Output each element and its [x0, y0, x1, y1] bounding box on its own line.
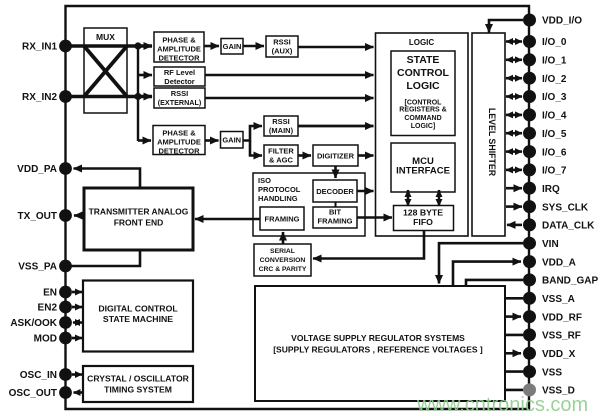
svg-text:VDD_PA: VDD_PA: [17, 164, 57, 175]
svg-text:VIN: VIN: [542, 239, 559, 250]
svg-text:RSSI: RSSI: [171, 89, 189, 98]
svg-text:FIFO: FIFO: [413, 217, 433, 227]
svg-text:LEVEL SHIFTER: LEVEL SHIFTER: [487, 108, 497, 177]
svg-text:FRONT END: FRONT END: [114, 217, 164, 227]
svg-text:TX_OUT: TX_OUT: [18, 211, 57, 222]
svg-text:RX_IN2: RX_IN2: [22, 92, 57, 103]
svg-text:GAIN: GAIN: [222, 136, 241, 145]
svg-text:VDD_I/O: VDD_I/O: [542, 16, 582, 27]
svg-text:DETECTOR: DETECTOR: [158, 54, 200, 63]
svg-text:SERIAL: SERIAL: [270, 248, 295, 255]
svg-text:RSSI: RSSI: [272, 117, 290, 126]
svg-text:INTERFACE: INTERFACE: [396, 166, 450, 177]
svg-text:DETECTOR: DETECTOR: [158, 147, 200, 156]
svg-text:COMMAND: COMMAND: [404, 115, 441, 122]
svg-text:CRC & PARITY: CRC & PARITY: [259, 266, 307, 273]
svg-text:SYS_CLK: SYS_CLK: [542, 202, 589, 213]
svg-text:FRAMING: FRAMING: [265, 215, 300, 224]
svg-text:ISO: ISO: [258, 176, 271, 185]
svg-text:FRAMING: FRAMING: [318, 217, 353, 226]
svg-text:[CONTROL: [CONTROL: [405, 100, 443, 107]
svg-text:PROTOCOL: PROTOCOL: [258, 185, 301, 194]
svg-text:I/O_7: I/O_7: [542, 166, 567, 177]
svg-text:LOGIC: LOGIC: [406, 80, 440, 92]
svg-text:VSS_RF: VSS_RF: [542, 331, 581, 342]
svg-text:TIMING SYSTEM: TIMING SYSTEM: [104, 385, 172, 395]
svg-text:& AGC: & AGC: [269, 156, 293, 165]
svg-text:OSC_OUT: OSC_OUT: [9, 388, 57, 399]
svg-text:VDD_X: VDD_X: [542, 349, 576, 360]
svg-text:DECODER: DECODER: [316, 187, 354, 196]
svg-text:(MAIN): (MAIN): [269, 126, 294, 135]
svg-text:VDD_RF: VDD_RF: [542, 312, 582, 323]
svg-text:128 BYTE: 128 BYTE: [403, 207, 443, 217]
svg-text:DIGITAL CONTROL: DIGITAL CONTROL: [98, 304, 178, 314]
svg-text:CRYSTAL / OSCILLATOR: CRYSTAL / OSCILLATOR: [87, 374, 189, 384]
svg-text:EN: EN: [43, 288, 57, 299]
svg-text:CONTROL: CONTROL: [397, 67, 449, 79]
svg-text:GAIN: GAIN: [223, 42, 242, 51]
svg-text:RSSI: RSSI: [273, 38, 291, 47]
svg-text:CONVERSION: CONVERSION: [260, 257, 306, 264]
svg-text:VDD_A: VDD_A: [542, 257, 576, 268]
svg-text:RX_IN1: RX_IN1: [22, 42, 57, 53]
svg-text:OSC_IN: OSC_IN: [20, 370, 57, 381]
svg-text:(EXTERNAL): (EXTERNAL): [158, 98, 202, 107]
svg-text:VSS: VSS: [542, 367, 562, 378]
svg-text:BAND_GAP: BAND_GAP: [542, 276, 598, 287]
svg-text:AMPLITUDE: AMPLITUDE: [157, 138, 201, 147]
svg-text:MOD: MOD: [34, 334, 57, 345]
svg-text:LOGIC: LOGIC: [409, 38, 435, 47]
svg-text:I/O_2: I/O_2: [542, 74, 567, 85]
svg-text:PHASE &: PHASE &: [162, 129, 196, 138]
svg-text:I/O_6: I/O_6: [542, 147, 567, 158]
svg-text:STATE MACHINE: STATE MACHINE: [103, 314, 173, 324]
svg-text:REGISTERS &: REGISTERS &: [399, 107, 446, 114]
svg-text:AMPLITUDE: AMPLITUDE: [157, 45, 201, 54]
svg-text:STATE: STATE: [407, 54, 440, 66]
svg-text:(AUX): (AUX): [272, 47, 293, 56]
svg-text:Detector: Detector: [164, 77, 195, 86]
svg-text:ASK/OOK: ASK/OOK: [10, 318, 57, 329]
svg-text:LOGIC]: LOGIC]: [411, 123, 436, 130]
svg-text:[SUPPLY REGULATORS , REFERENC: [SUPPLY REGULATORS , REFERENCE VOLTAGES …: [273, 345, 483, 355]
svg-text:I/O_1: I/O_1: [542, 56, 567, 67]
svg-text:VOLTAGE SUPPLY REGULATOR SYSTE: VOLTAGE SUPPLY REGULATOR SYSTEMS: [291, 333, 465, 343]
svg-text:HANDLING: HANDLING: [258, 194, 298, 203]
svg-text:DIGITIZER: DIGITIZER: [317, 152, 355, 161]
svg-text:I/O_5: I/O_5: [542, 129, 567, 140]
svg-text:VSS_PA: VSS_PA: [18, 262, 57, 273]
svg-text:EN2: EN2: [38, 303, 58, 314]
svg-text:I/O_4: I/O_4: [542, 111, 567, 122]
svg-text:RF Level: RF Level: [164, 68, 195, 77]
svg-text:FILTER: FILTER: [268, 147, 294, 156]
svg-text:MUX: MUX: [96, 32, 115, 42]
svg-text:VSS_A: VSS_A: [542, 294, 575, 305]
svg-text:IRQ: IRQ: [542, 184, 560, 195]
svg-text:www.cntronics.com: www.cntronics.com: [416, 394, 588, 416]
svg-text:PHASE &: PHASE &: [162, 36, 196, 45]
svg-text:TRANSMITTER ANALOG: TRANSMITTER ANALOG: [89, 206, 189, 216]
svg-text:BIT: BIT: [329, 208, 342, 217]
svg-text:I/O_0: I/O_0: [542, 37, 567, 48]
svg-text:I/O_3: I/O_3: [542, 92, 567, 103]
svg-text:DATA_CLK: DATA_CLK: [542, 221, 595, 232]
